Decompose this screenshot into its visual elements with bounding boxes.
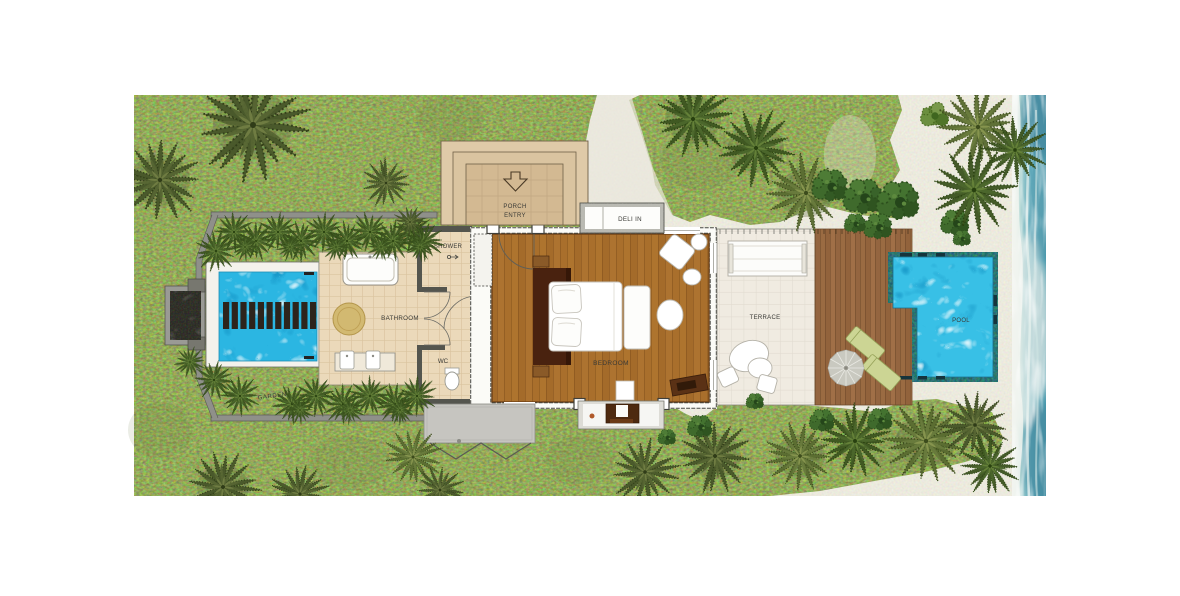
svg-text:POOL: POOL [952, 318, 970, 324]
svg-text:PORCH: PORCH [503, 204, 526, 210]
svg-text:TERRACE: TERRACE [750, 315, 781, 321]
svg-text:WC: WC [438, 358, 449, 365]
svg-text:BEDROOM: BEDROOM [593, 360, 629, 367]
svg-text:DELI IN: DELI IN [618, 216, 642, 223]
svg-text:BATHROOM: BATHROOM [381, 315, 419, 322]
svg-text:ENTRY: ENTRY [504, 213, 526, 219]
